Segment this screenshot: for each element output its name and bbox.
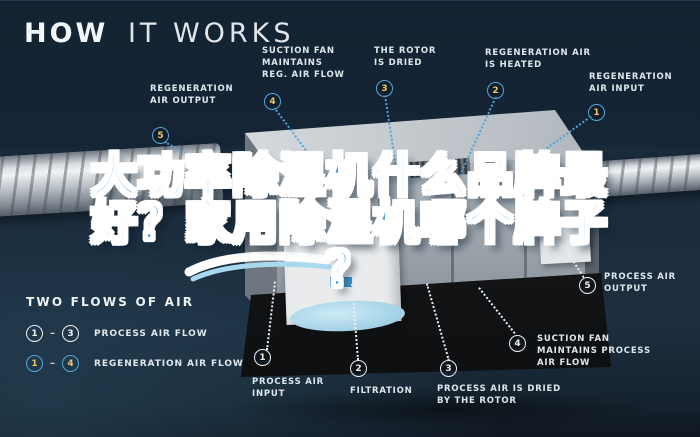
background-seam bbox=[0, 0, 700, 1]
badge-process-3: 3 bbox=[440, 360, 457, 377]
legend-label-regeneration: REGENERATION AIR FLOW bbox=[94, 359, 244, 369]
badge-process-1: 1 bbox=[254, 349, 271, 366]
label-regeneration-air-output: REGENERATION AIR OUTPUT bbox=[150, 84, 233, 108]
badge-regeneration-5: 5 bbox=[152, 127, 169, 144]
page-title-light: IT WORKS bbox=[128, 18, 295, 49]
legend-title: TWO FLOWS OF AIR bbox=[26, 295, 194, 309]
label-process-dried: PROCESS AIR IS DRIED BY THE ROTOR bbox=[437, 384, 561, 408]
legend-badge-from: 1 bbox=[26, 355, 43, 372]
page-title-bold: HOW bbox=[24, 18, 108, 49]
legend-row-process: 1 – 3 PROCESS AIR FLOW bbox=[26, 325, 208, 342]
legend-dash: – bbox=[50, 358, 55, 369]
page-title: HOW IT WORKS bbox=[24, 18, 295, 49]
badge-regeneration-2: 2 bbox=[487, 82, 504, 99]
legend-badge-to: 4 bbox=[62, 355, 79, 372]
legend-dash: – bbox=[50, 328, 55, 339]
label-regeneration-air-input: REGENERATION AIR INPUT bbox=[589, 72, 672, 96]
badge-process-2: 2 bbox=[350, 360, 367, 377]
legend-badge-from: 1 bbox=[26, 325, 43, 342]
badge-regeneration-3: 3 bbox=[376, 80, 393, 97]
headline-overlay: 大功率除湿机什么品牌最 好？家用除湿机哪个牌子 ？ bbox=[0, 152, 700, 293]
legend-badge-to: 3 bbox=[62, 325, 79, 342]
label-process-air-input: PROCESS AIR INPUT bbox=[252, 377, 324, 401]
label-suction-fan-process: SUCTION FAN MAINTAINS PROCESS AIR FLOW bbox=[537, 334, 651, 370]
headline-line-2: 好？家用除湿机哪个牌子 bbox=[0, 199, 700, 246]
legend-label-process: PROCESS AIR FLOW bbox=[94, 329, 208, 339]
headline-line-3: ？ bbox=[0, 246, 700, 293]
label-filtration: FILTRATION bbox=[350, 386, 413, 398]
headline-line-1: 大功率除湿机什么品牌最 bbox=[0, 152, 700, 199]
legend-row-regeneration: 1 – 4 REGENERATION AIR FLOW bbox=[26, 355, 244, 372]
label-regeneration-heated: REGENERATION AIR IS HEATED bbox=[485, 48, 591, 72]
badge-process-4: 4 bbox=[509, 335, 526, 352]
badge-regeneration-1: 1 bbox=[588, 104, 605, 121]
badge-regeneration-4: 4 bbox=[264, 93, 281, 110]
infographic-canvas: 5 4 3 2 1 5 4 3 2 1 REGENERATION AIR OUT… bbox=[0, 0, 700, 437]
label-rotor-dried: THE ROTOR IS DRIED bbox=[374, 46, 436, 70]
label-suction-fan-reg: SUCTION FAN MAINTAINS REG. AIR FLOW bbox=[262, 46, 345, 82]
